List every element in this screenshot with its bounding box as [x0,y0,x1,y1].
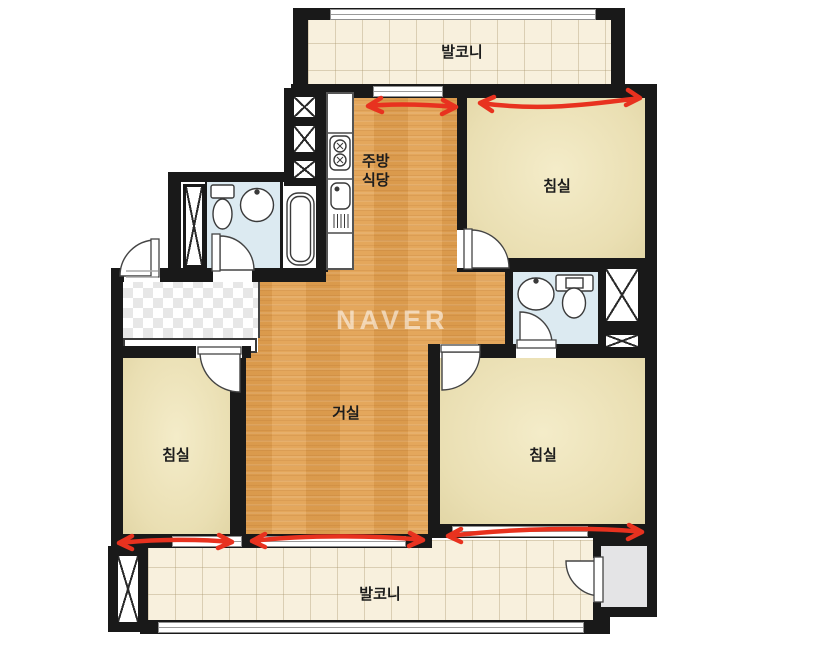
room-label-balcony-bottom: 발코니 [325,585,435,604]
kitchen-label-line2: 식당 [362,171,422,190]
door-leaf [517,340,556,348]
toilet-tank-icon [211,185,234,198]
washbasin-faucet-dot [534,279,538,283]
room-label-kitchen: 주방 식당 [362,152,422,190]
toilet-bowl-icon [563,288,586,318]
door-swing-bath-right [520,312,552,344]
floor-plan: 발코니 주방 식당 침실 거실 침실 침실 발코니 NAVER [0,0,821,656]
door-swing-bedroom-top-right [471,230,509,268]
room-label-bedroom-top-right: 침실 [502,177,612,196]
toilet-bowl-icon [213,199,232,229]
door-leaf [198,347,241,354]
annotation-arrow-bedroom-bottom-right [448,525,642,542]
door-swing-bedroom-bottom-left [200,352,240,392]
kitchen-faucet-dot [335,187,339,191]
toilet-tank-inner [566,278,583,288]
door-leaf [441,345,480,352]
room-label-bedroom-bottom-right: 침실 [488,446,598,465]
naver-watermark: NAVER [336,305,449,336]
annotation-arrow-kitchen [368,98,456,114]
room-label-balcony-top: 발코니 [407,43,517,62]
bathtub-inner [291,197,311,262]
drain-vent-lines [334,214,348,228]
door-leaf [594,557,603,602]
room-label-bedroom-bottom-left: 침실 [121,446,231,465]
door-swing-bath-left [220,236,254,270]
room-label-living: 거실 [291,404,401,423]
door-swing-bedroom-bottom-right [442,352,480,390]
kitchen-sink-icon [331,183,350,209]
kitchen-label-line1: 주방 [362,152,422,171]
annotation-arrow-bedroom-top-right [480,90,640,111]
annotation-arrow-bedroom-bottom-left [119,535,232,549]
door-leaf [212,234,220,271]
annotation-arrow-living [252,533,423,547]
door-leaf [464,229,472,269]
washbasin-faucet-dot [255,190,259,194]
